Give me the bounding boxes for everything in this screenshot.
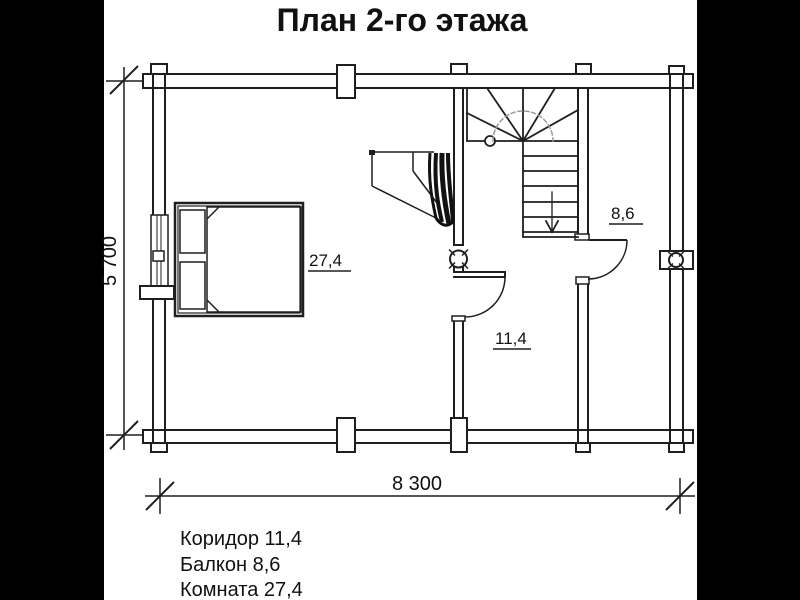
label-balcony-area: 8,6 bbox=[611, 204, 635, 223]
flue-circle bbox=[449, 250, 468, 269]
wall-joint-mask bbox=[579, 431, 587, 442]
joint-bottom-left bbox=[151, 443, 167, 452]
joint-top-left bbox=[151, 64, 167, 74]
joint-top-mid bbox=[337, 65, 355, 98]
joint-bottom-wallA bbox=[451, 418, 467, 452]
legend-item-corridor: Коридор 11,4 bbox=[180, 528, 302, 550]
joint-bottom-partition bbox=[576, 443, 590, 452]
floor-plan-canvas: План 2-го этажа bbox=[0, 0, 800, 600]
pillarbox-right bbox=[697, 0, 800, 600]
joint-top-wallA bbox=[451, 64, 467, 74]
joint-top-right bbox=[669, 66, 684, 74]
joint-bottom-right bbox=[669, 443, 684, 452]
legend-item-balcony: Балкон 8,6 bbox=[180, 554, 280, 576]
log-crossing-left bbox=[140, 286, 174, 299]
joint-bottom-mid bbox=[337, 418, 355, 452]
label-corridor-area: 11,4 bbox=[495, 329, 527, 348]
dim-height-label: 5 700 bbox=[99, 236, 121, 286]
page-title: План 2-го этажа bbox=[277, 2, 528, 38]
wall-end-cap bbox=[576, 277, 589, 284]
window-sash-tick bbox=[153, 251, 164, 261]
pillarbox-left bbox=[0, 0, 104, 600]
floor-plan-page: План 2-го этажа bbox=[0, 0, 800, 600]
log-crossing-right bbox=[660, 251, 693, 269]
joint-top-partition bbox=[576, 64, 591, 74]
legend-item-room: Комната 27,4 bbox=[180, 579, 303, 600]
window-left-wall bbox=[151, 215, 168, 286]
wall-end-cap bbox=[452, 316, 465, 321]
dim-width-label: 8 300 bbox=[392, 473, 442, 495]
label-room-area: 27,4 bbox=[309, 251, 342, 270]
